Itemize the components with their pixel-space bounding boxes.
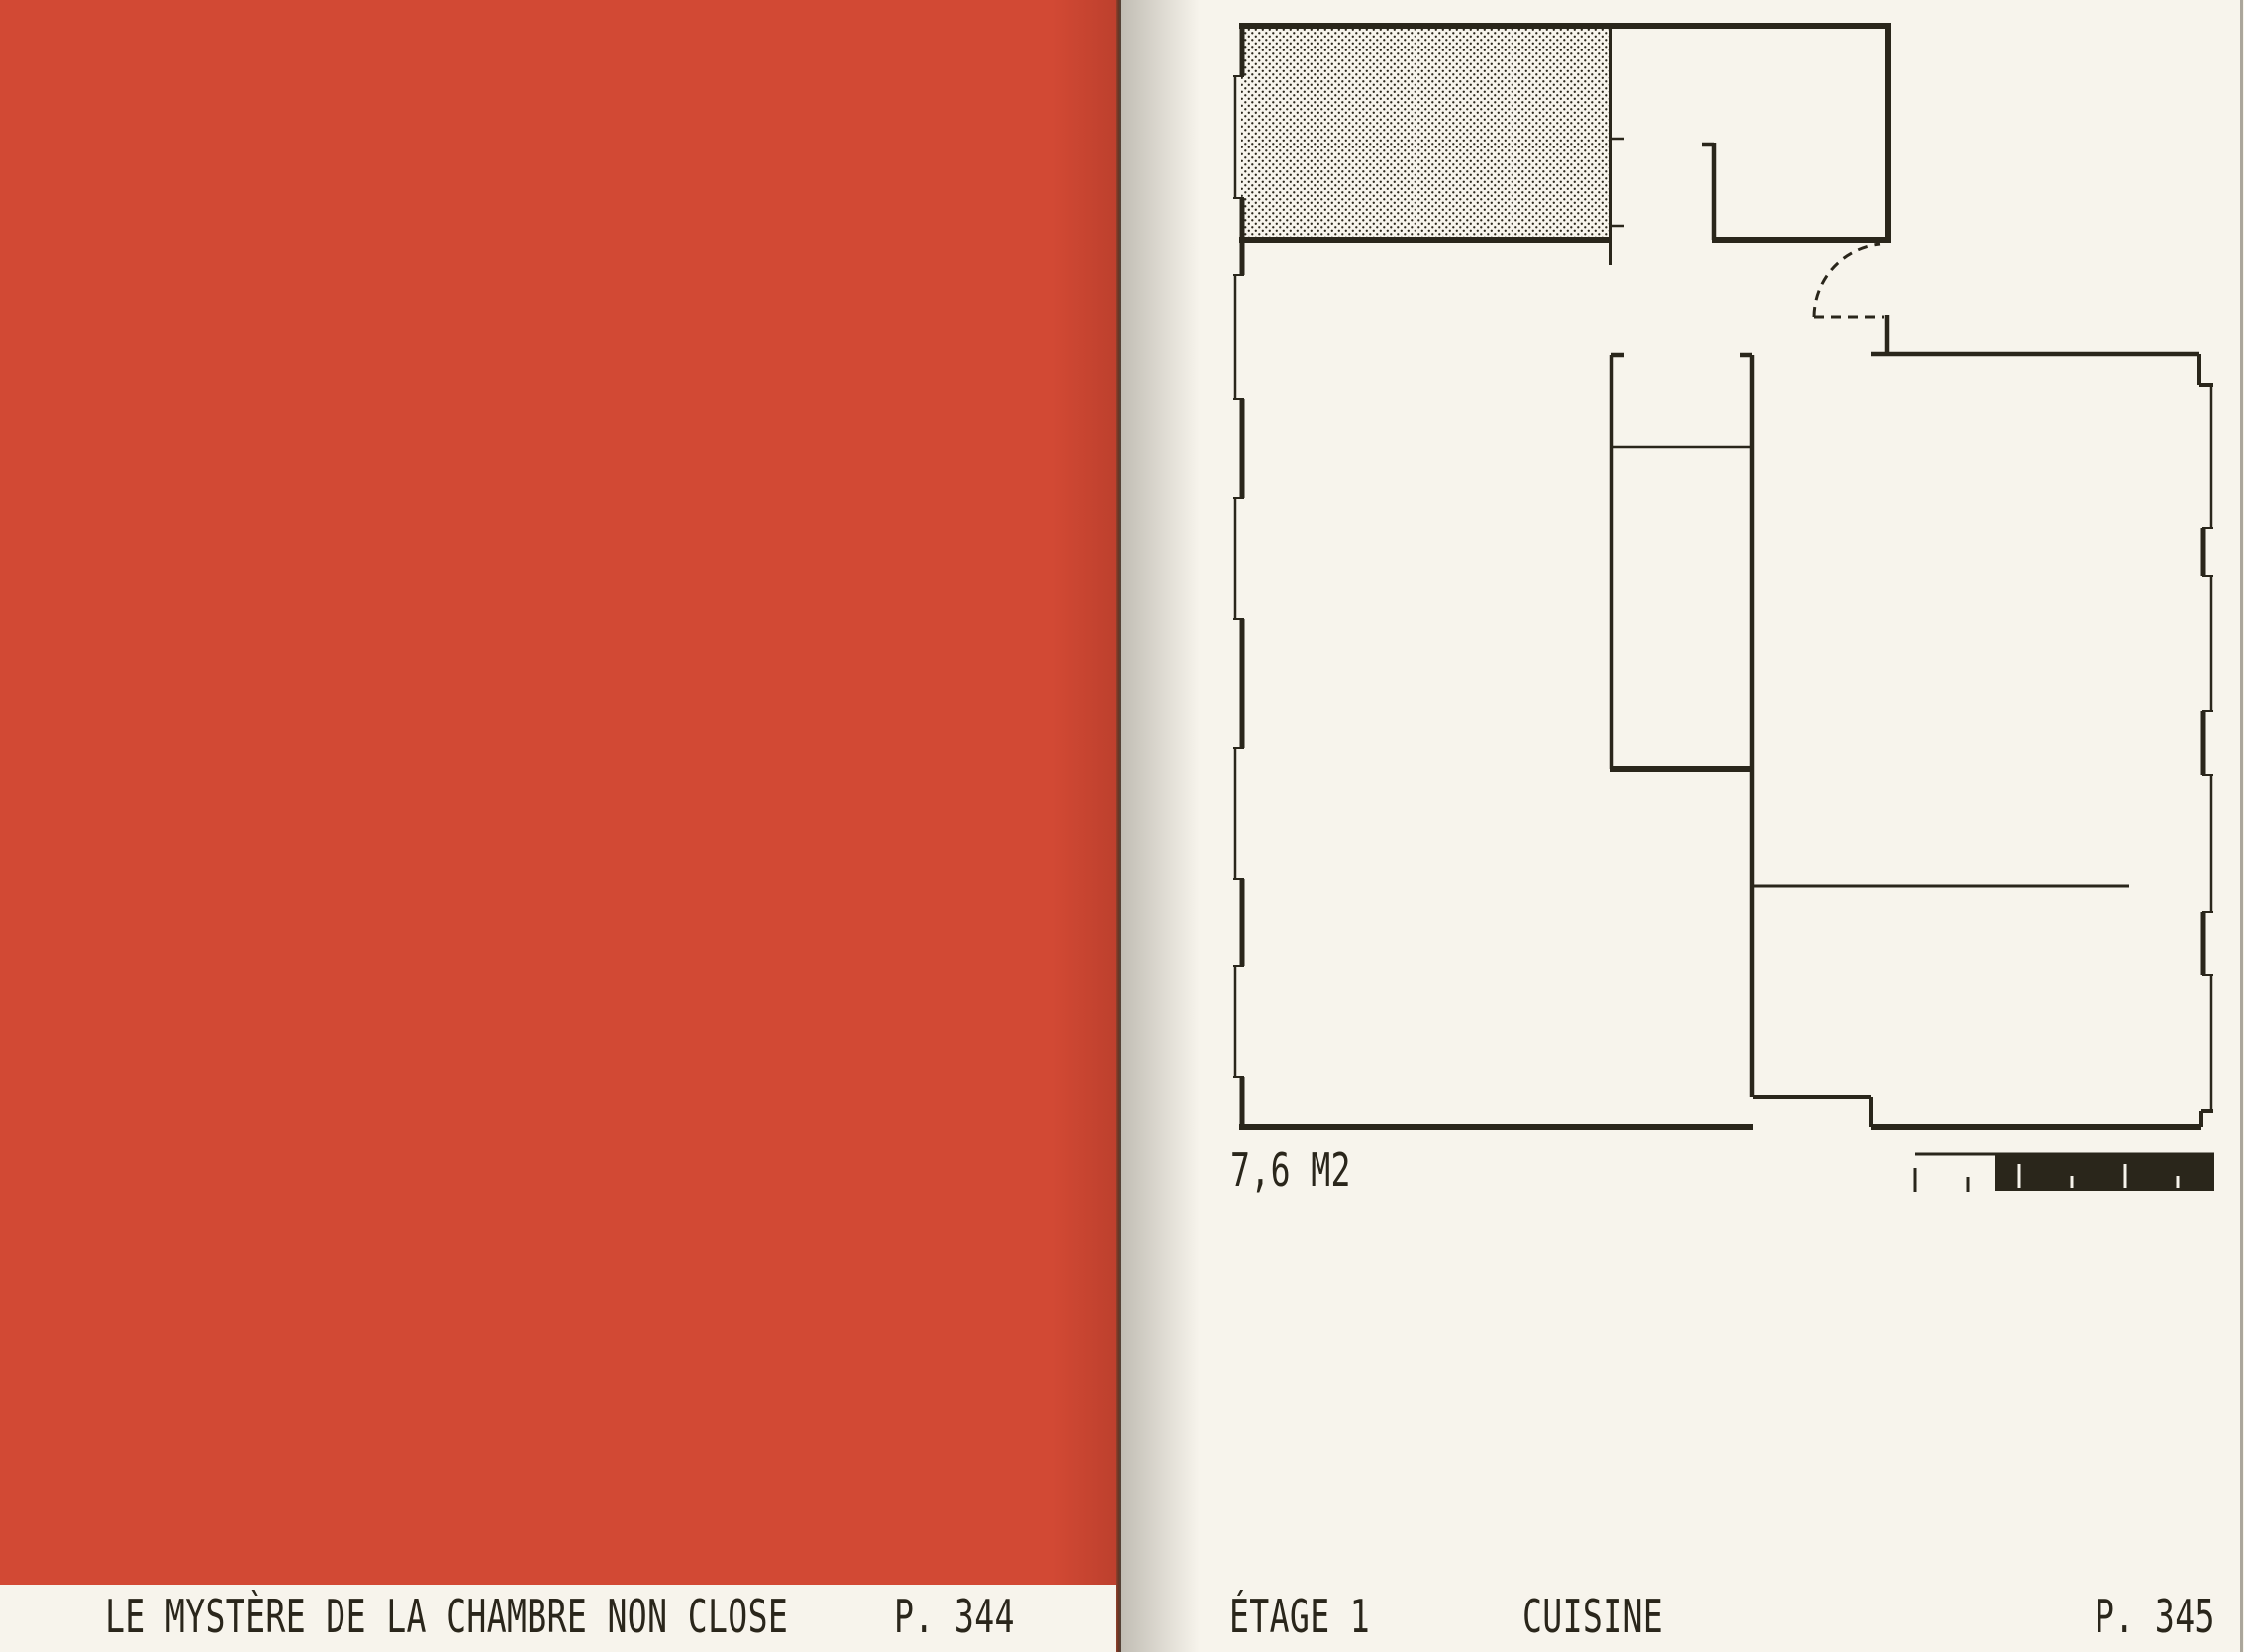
middle-room-left-wall [1611,355,1624,769]
page-edge [2240,0,2243,1652]
top-room-interior-wall [1702,143,1714,240]
caption-page-number-left: P. 344 [894,1593,1015,1640]
middle-room-right-wall [1740,355,1752,1097]
book-spread: 7,6 M2 LE MYSTÈRE DE LA CHAMBRE NON CLOS… [0,0,2244,1652]
caption-room: CUISINE [1522,1593,1663,1640]
right-wall-bottom-step [2201,1111,2213,1127]
right-wall-step [2199,354,2213,385]
area-label: 7,6 M2 [1230,1146,1351,1194]
caption-floor: ÉTAGE 1 [1229,1593,1370,1640]
bottom-recess [1753,1097,1871,1127]
hatched-room [1241,28,1610,240]
door-swing-arc [1814,244,1880,317]
gutter-shadow-right [1121,0,1200,1652]
scale-bar [1915,1153,2214,1192]
caption-title: LE MYSTÈRE DE LA CHAMBRE NON CLOSE [105,1593,788,1640]
gutter-shadow-left [1052,0,1116,1585]
caption-page-number-right: P. 345 [2095,1593,2215,1640]
